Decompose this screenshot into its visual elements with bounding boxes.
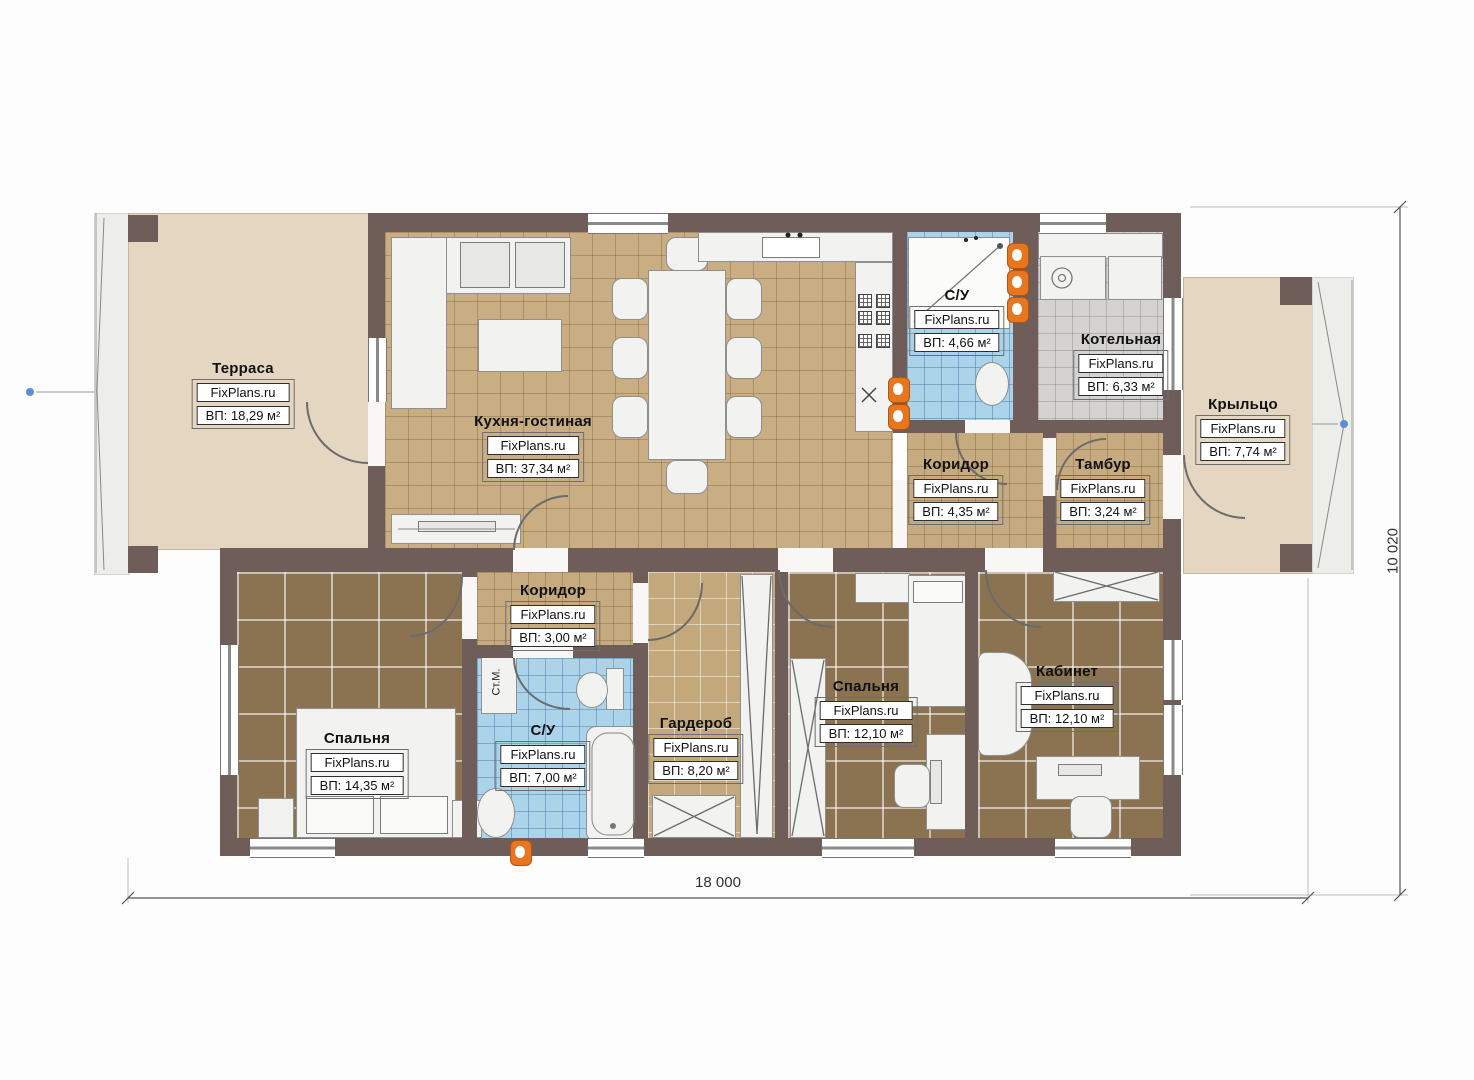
dining-chair xyxy=(612,396,648,438)
radiator xyxy=(1007,270,1029,296)
room-area: ВП: 6,33 м² xyxy=(1078,377,1163,396)
sofa-chaise xyxy=(391,237,447,409)
room-area: ВП: 14,35 м² xyxy=(311,776,404,795)
room-name: Крыльцо xyxy=(1195,396,1290,413)
room-info-box: FixPlans.ru ВП: 8,20 м² xyxy=(648,734,743,784)
door-opening-office xyxy=(985,548,1043,572)
wall-bottom xyxy=(220,838,1181,856)
room-label-vestibule: Тамбур FixPlans.ru ВП: 3,24 м² xyxy=(1055,456,1150,525)
office-wardrobe xyxy=(1053,570,1160,602)
radiator xyxy=(888,377,910,403)
room-label-wardrobe: Гардероб FixPlans.ru ВП: 8,20 м² xyxy=(648,715,743,784)
window xyxy=(588,838,644,858)
watermark: FixPlans.ru xyxy=(510,605,595,624)
stove-burner xyxy=(858,311,872,325)
porch-pillar xyxy=(1280,277,1312,305)
room-info-box: FixPlans.ru ВП: 4,66 м² xyxy=(909,306,1004,356)
stove-burner xyxy=(876,334,890,348)
room-label-corridor-bottom: Коридор FixPlans.ru ВП: 3,00 м² xyxy=(505,582,600,651)
dining-chair xyxy=(612,337,648,379)
room-name: С/У xyxy=(909,287,1004,304)
room-label-terrace: Терраса FixPlans.ru ВП: 18,29 м² xyxy=(192,360,295,429)
dining-table xyxy=(648,270,726,460)
room-area: ВП: 18,29 м² xyxy=(197,406,290,425)
room-name: Кухня-гостиная xyxy=(474,413,592,430)
coffee-table xyxy=(478,319,562,372)
room-label-bedroom-left: Спальня FixPlans.ru ВП: 14,35 м² xyxy=(306,730,409,799)
terrace-roof-strip xyxy=(94,213,130,575)
room-name: Гардероб xyxy=(648,715,743,732)
desk-monitor xyxy=(930,760,942,804)
toilet-tank xyxy=(606,668,624,710)
floor-plan-canvas: Терраса FixPlans.ru ВП: 18,29 м² Кухня-г… xyxy=(0,0,1474,1080)
room-label-kitchen-living: Кухня-гостиная FixPlans.ru ВП: 37,34 м² xyxy=(474,413,592,482)
bed-pillow xyxy=(380,796,448,834)
room-label-office: Кабинет FixPlans.ru ВП: 12,10 м² xyxy=(1016,663,1119,732)
room-area: ВП: 4,35 м² xyxy=(913,502,998,521)
room-name: Терраса xyxy=(192,360,295,377)
watermark: FixPlans.ru xyxy=(914,310,999,329)
room-name: Котельная xyxy=(1073,331,1168,348)
room-label-bedroom-middle: Спальня FixPlans.ru ВП: 12,10 м² xyxy=(815,678,918,747)
room-info-box: FixPlans.ru ВП: 37,34 м² xyxy=(482,432,585,482)
bedroom-middle-closet xyxy=(855,573,910,603)
room-area: ВП: 7,00 м² xyxy=(500,768,585,787)
room-info-box: FixPlans.ru ВП: 12,10 м² xyxy=(815,697,918,747)
desk-chair xyxy=(894,764,930,808)
stove-burner xyxy=(858,294,872,308)
door-opening-kitchen-corridor xyxy=(893,480,907,548)
door-opening-vestibule xyxy=(1043,438,1056,496)
door-opening-terrace xyxy=(368,402,385,466)
room-info-box: FixPlans.ru ВП: 6,33 м² xyxy=(1073,350,1168,400)
room-info-box: FixPlans.ru ВП: 3,24 м² xyxy=(1055,475,1150,525)
radiator xyxy=(1007,243,1029,269)
porch-steps xyxy=(1312,277,1354,574)
door-opening-porch xyxy=(1163,455,1181,519)
window xyxy=(220,645,239,775)
office-desk xyxy=(1036,756,1140,800)
sofa-cushion xyxy=(460,242,510,288)
room-name: Тамбур xyxy=(1055,456,1150,473)
office-chair xyxy=(1070,796,1112,838)
watermark: FixPlans.ru xyxy=(311,753,404,772)
room-name: С/У xyxy=(495,722,590,739)
bathroom-bottom-sink xyxy=(477,788,515,838)
room-area: ВП: 37,34 м² xyxy=(487,459,580,478)
window xyxy=(588,213,668,234)
dimension-height: 10 020 xyxy=(1385,528,1402,574)
watermark: FixPlans.ru xyxy=(500,745,585,764)
room-area: ВП: 7,74 м² xyxy=(1200,442,1285,461)
room-name: Спальня xyxy=(815,678,918,695)
wardrobe-unit-tall xyxy=(740,574,773,838)
watermark: FixPlans.ru xyxy=(1200,419,1285,438)
boiler-washer xyxy=(1040,256,1106,300)
window xyxy=(368,338,387,402)
dining-chair xyxy=(726,396,762,438)
bathtub xyxy=(586,726,640,842)
room-info-box: FixPlans.ru ВП: 7,74 м² xyxy=(1195,415,1290,465)
room-area: ВП: 4,66 м² xyxy=(914,333,999,352)
kitchen-sink xyxy=(762,237,820,258)
terrace-pillar xyxy=(128,215,158,242)
room-label-porch: Крыльцо FixPlans.ru ВП: 7,74 м² xyxy=(1195,396,1290,465)
watermark: FixPlans.ru xyxy=(1060,479,1145,498)
door-opening-bedroom-middle xyxy=(778,548,833,572)
room-area: ВП: 12,10 м² xyxy=(1021,709,1114,728)
door-opening-bathroom-top xyxy=(965,420,1010,433)
washing-machine-label: Ст.М. xyxy=(491,668,503,695)
bed-pillow xyxy=(306,796,374,834)
terrace-pillar xyxy=(128,546,158,573)
nightstand xyxy=(258,798,294,838)
toilet-bowl xyxy=(576,672,608,708)
room-info-box: FixPlans.ru ВП: 12,10 м² xyxy=(1016,682,1119,732)
room-info-box: FixPlans.ru ВП: 7,00 м² xyxy=(495,741,590,791)
window xyxy=(1040,213,1106,234)
watermark: FixPlans.ru xyxy=(487,436,580,455)
watermark: FixPlans.ru xyxy=(820,701,913,720)
room-name: Кабинет xyxy=(1016,663,1119,680)
stove-burner xyxy=(858,334,872,348)
tv xyxy=(418,521,496,532)
window xyxy=(1163,640,1183,700)
watermark: FixPlans.ru xyxy=(197,383,290,402)
room-label-bathroom-bottom: С/У FixPlans.ru ВП: 7,00 м² xyxy=(495,722,590,791)
stove-burner xyxy=(876,311,890,325)
window xyxy=(250,838,335,858)
wardrobe-unit-bottom xyxy=(652,795,736,838)
room-label-bathroom-top: С/У FixPlans.ru ВП: 4,66 м² xyxy=(909,287,1004,356)
wall-bathroom-top-bottom xyxy=(893,420,1163,433)
room-label-corridor-top: Коридор FixPlans.ru ВП: 4,35 м² xyxy=(908,456,1003,525)
room-area: ВП: 3,24 м² xyxy=(1060,502,1145,521)
room-name: Спальня xyxy=(306,730,409,747)
bed-pillow xyxy=(913,581,963,603)
room-name: Коридор xyxy=(505,582,600,599)
wall-bedroom-office xyxy=(965,572,978,838)
desk-keyboard xyxy=(1058,764,1102,776)
radiator xyxy=(1007,297,1029,323)
porch-pillar xyxy=(1280,544,1312,572)
room-info-box: FixPlans.ru ВП: 14,35 м² xyxy=(306,749,409,799)
bathroom-top-sink xyxy=(975,362,1009,406)
room-label-boiler: Котельная FixPlans.ru ВП: 6,33 м² xyxy=(1073,331,1168,400)
stove-burner xyxy=(876,294,890,308)
room-info-box: FixPlans.ru ВП: 18,29 м² xyxy=(192,379,295,429)
wall-wardrobe-bedroom xyxy=(775,572,788,838)
door-opening-bedroom-left xyxy=(462,577,477,639)
watermark: FixPlans.ru xyxy=(1021,686,1114,705)
dining-chair xyxy=(666,460,708,494)
room-area: ВП: 3,00 м² xyxy=(510,628,595,647)
radiator xyxy=(510,840,532,866)
door-opening-wardrobe xyxy=(633,583,648,643)
boiler-unit xyxy=(1108,256,1162,300)
window xyxy=(1055,838,1131,858)
radiator xyxy=(888,404,910,430)
room-info-box: FixPlans.ru ВП: 3,00 м² xyxy=(505,601,600,651)
room-name: Коридор xyxy=(908,456,1003,473)
room-area: ВП: 8,20 м² xyxy=(653,761,738,780)
watermark: FixPlans.ru xyxy=(913,479,998,498)
room-info-box: FixPlans.ru ВП: 4,35 м² xyxy=(908,475,1003,525)
window xyxy=(1163,705,1183,775)
room-area: ВП: 12,10 м² xyxy=(820,724,913,743)
dining-chair xyxy=(726,278,762,320)
dining-chair xyxy=(726,337,762,379)
watermark: FixPlans.ru xyxy=(653,738,738,757)
dimension-width: 18 000 xyxy=(695,874,741,891)
door-opening-corridor-bottom xyxy=(513,548,568,572)
sofa-cushion xyxy=(515,242,565,288)
watermark: FixPlans.ru xyxy=(1078,354,1163,373)
dining-chair xyxy=(612,278,648,320)
window xyxy=(822,838,914,858)
